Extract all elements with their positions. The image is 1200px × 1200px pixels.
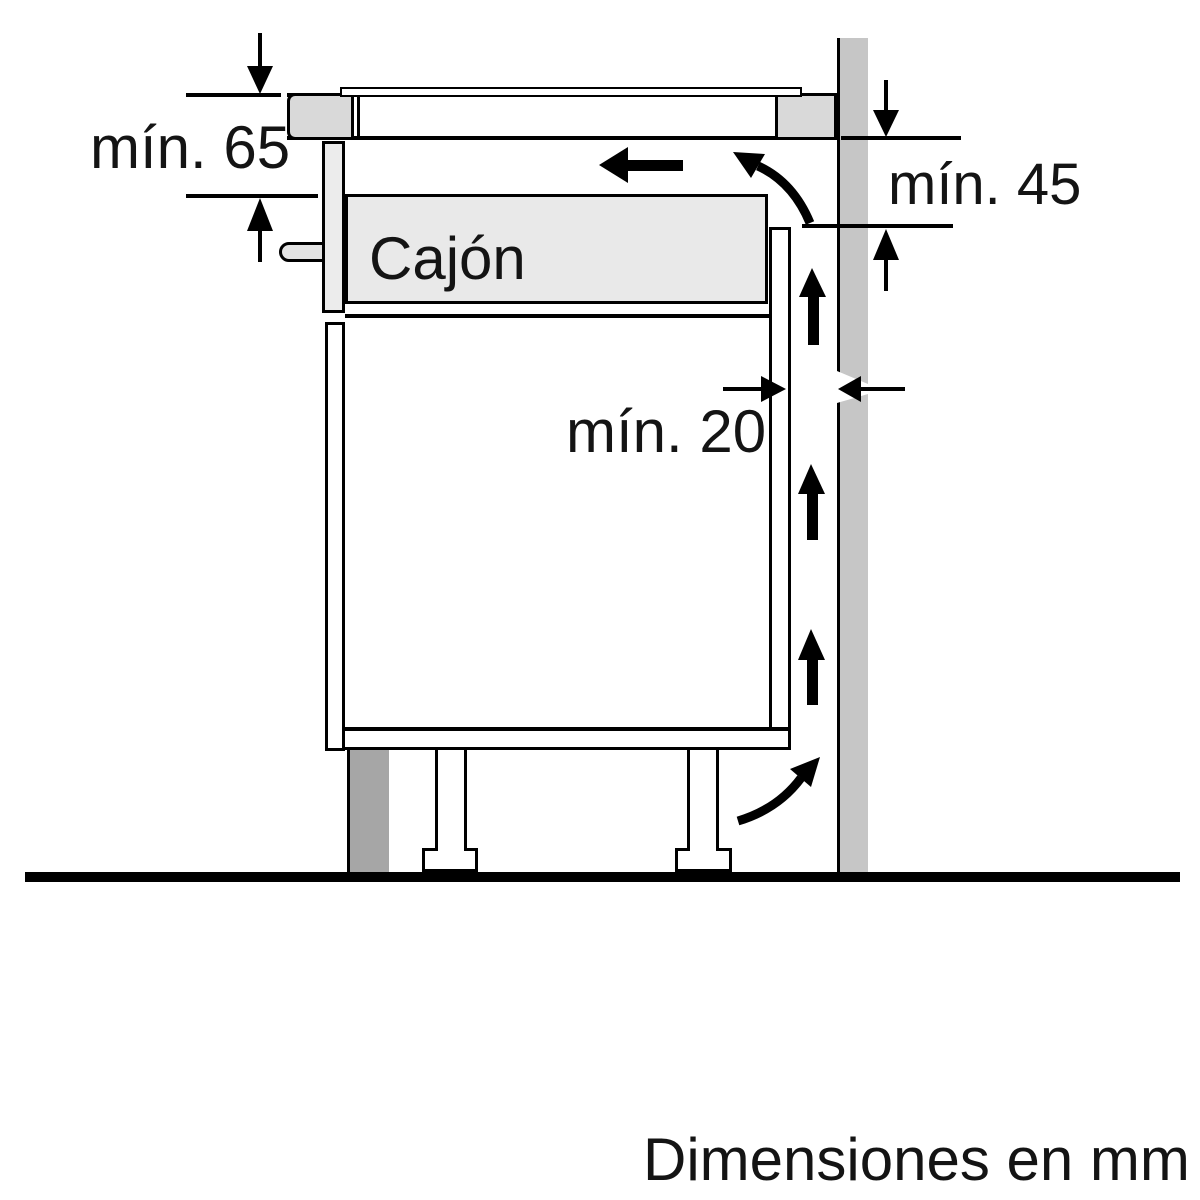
airflow-up-arrow-2 (798, 464, 825, 540)
leg-foot-left (422, 848, 478, 872)
label-units-note: Dimensiones en mm (643, 1130, 1190, 1190)
drawer-handle (279, 242, 325, 262)
dimension-arrow-down-65 (247, 33, 273, 94)
leg-foot-right (675, 848, 732, 872)
cabinet-bottom-panel (345, 727, 791, 750)
drawer-box: Cajón (345, 194, 768, 304)
dimension-arrow-up-65 (247, 198, 273, 262)
leg-right (687, 750, 719, 851)
dimension-arrow-up-45 (873, 229, 899, 291)
cabinet-door-panel (325, 322, 345, 751)
drawer-label: Cajón (369, 229, 526, 289)
dimension-arrow-down-45 (873, 80, 899, 137)
airflow-up-arrow-1 (799, 268, 826, 345)
hob-glass-top (340, 87, 802, 97)
plinth (347, 750, 389, 872)
dim-line-65-bottom (186, 194, 318, 198)
drawer-compartment-divider (345, 314, 769, 318)
label-clearance-45: mín. 45 (888, 156, 1081, 214)
dim-line-45-bottom (802, 224, 953, 228)
label-clearance-20: mín. 20 (566, 402, 766, 462)
airflow-curve-bottom-arrow (738, 757, 820, 821)
worktop-right-end (775, 93, 837, 140)
cabinet-back-panel (769, 227, 791, 748)
wall-section (837, 38, 868, 872)
dim-line-65-top (186, 93, 281, 97)
leg-left (435, 750, 467, 851)
airflow-up-arrow-3 (798, 629, 825, 705)
worktop-joint-line (357, 96, 360, 137)
installation-diagram: Cajón (0, 0, 1200, 1200)
dim-line-45-top (841, 136, 961, 140)
worktop-left-end (287, 93, 354, 140)
worktop (287, 93, 837, 140)
label-clearance-65: mín. 65 (90, 118, 290, 178)
drawer-front-panel (322, 141, 345, 313)
airflow-left-arrow (599, 147, 683, 183)
floor-line (25, 872, 1180, 882)
